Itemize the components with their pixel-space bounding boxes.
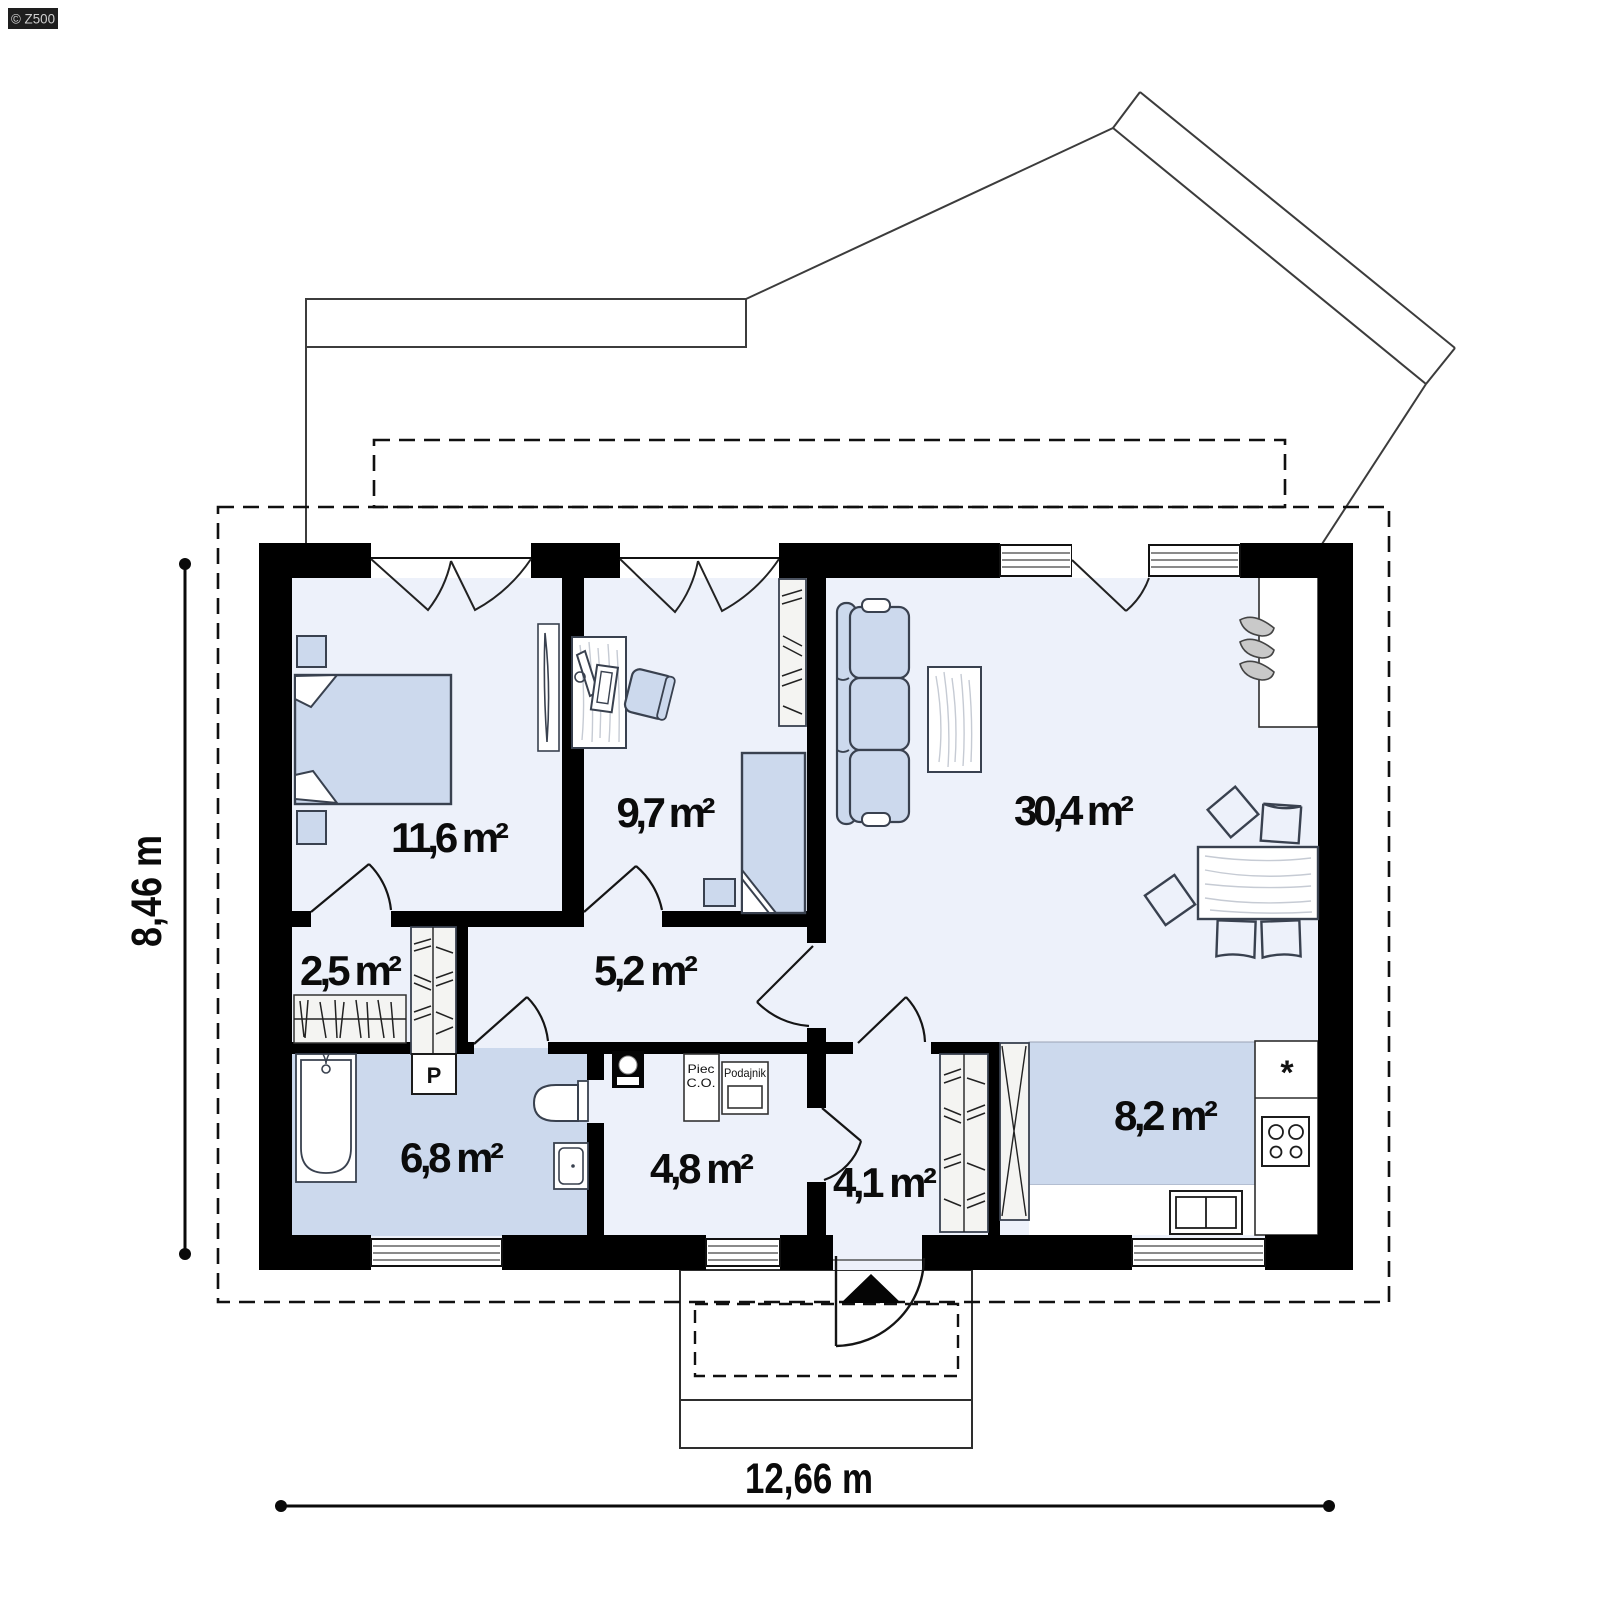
svg-text:© Z500: © Z500 — [11, 11, 55, 27]
svg-text:4,1 m²: 4,1 m² — [833, 1159, 937, 1206]
svg-text:Piec: Piec — [688, 1062, 715, 1076]
svg-text:12,66 m: 12,66 m — [745, 1455, 873, 1503]
svg-text:C.O.: C.O. — [687, 1076, 716, 1090]
svg-text:Podajnik: Podajnik — [724, 1066, 767, 1080]
svg-text:4,8 m²: 4,8 m² — [650, 1145, 754, 1192]
svg-text:8,2 m²: 8,2 m² — [1114, 1092, 1218, 1139]
svg-text:P: P — [427, 1063, 442, 1088]
svg-text:2,5 m²: 2,5 m² — [300, 947, 402, 994]
svg-text:11,6 m²: 11,6 m² — [391, 814, 509, 861]
svg-text:8,46 m: 8,46 m — [123, 835, 171, 947]
svg-text:5,2 m²: 5,2 m² — [594, 947, 698, 994]
svg-text:9,7 m²: 9,7 m² — [617, 789, 716, 836]
svg-text:6,8 m²: 6,8 m² — [400, 1134, 504, 1181]
svg-text:*: * — [1280, 1054, 1294, 1092]
svg-text:30,4 m²: 30,4 m² — [1014, 787, 1134, 834]
